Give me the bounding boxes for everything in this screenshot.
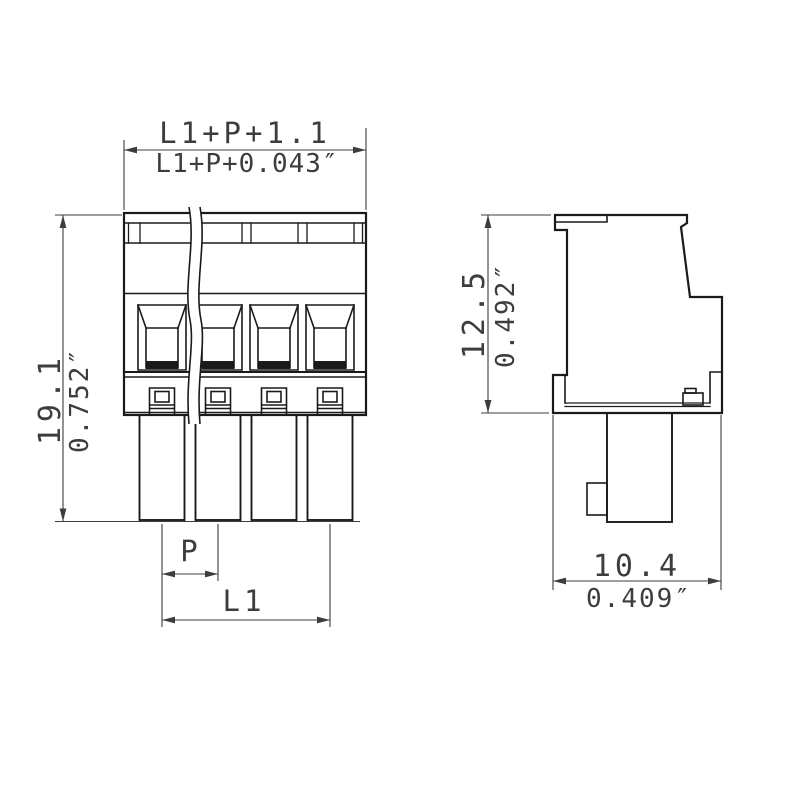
side-view-body bbox=[553, 215, 722, 522]
side-depth-metric-label: 10.4 bbox=[593, 549, 681, 584]
side-body-outline bbox=[553, 215, 722, 413]
arrow-icon bbox=[162, 617, 175, 624]
length-label: L1 bbox=[223, 584, 266, 618]
arrow-icon bbox=[708, 578, 721, 585]
arrow-icon bbox=[553, 578, 566, 585]
technical-drawing: L1+P+1.1 L1+P+0.043″ 19.1 0.752″ P L1 12… bbox=[0, 0, 800, 800]
arrow-icon bbox=[485, 400, 492, 413]
arrow-icon bbox=[124, 147, 137, 154]
front-view-body bbox=[124, 213, 366, 520]
arrow-icon bbox=[60, 215, 67, 228]
arrow-icon bbox=[60, 509, 67, 522]
side-leg-protrusion bbox=[587, 483, 607, 515]
drawing-svg: L1+P+1.1 L1+P+0.043″ 19.1 0.752″ P L1 12… bbox=[0, 0, 800, 800]
pitch-label: P bbox=[180, 534, 197, 568]
front-height-metric-label: 19.1 bbox=[33, 353, 68, 445]
side-inner-right-wall bbox=[710, 372, 722, 403]
dimension-texts: L1+P+1.1 L1+P+0.043″ 19.1 0.752″ P L1 12… bbox=[33, 116, 692, 618]
front-strip-ticks bbox=[129, 223, 363, 243]
arrow-icon bbox=[353, 147, 366, 154]
side-leg bbox=[607, 413, 672, 522]
arrow-icon bbox=[205, 571, 218, 578]
side-height-metric-label: 12.5 bbox=[457, 267, 492, 359]
arrow-icon bbox=[317, 617, 330, 624]
front-height-inch-label: 0.752″ bbox=[65, 347, 95, 453]
arrow-icon bbox=[485, 215, 492, 228]
front-width-inch-label: L1+P+0.043″ bbox=[155, 149, 338, 179]
side-height-inch-label: 0.492″ bbox=[491, 262, 521, 368]
side-latch-tab bbox=[685, 389, 696, 394]
side-depth-inch-label: 0.409″ bbox=[586, 584, 692, 614]
front-width-metric-label: L1+P+1.1 bbox=[159, 116, 331, 150]
arrow-icon bbox=[162, 571, 175, 578]
